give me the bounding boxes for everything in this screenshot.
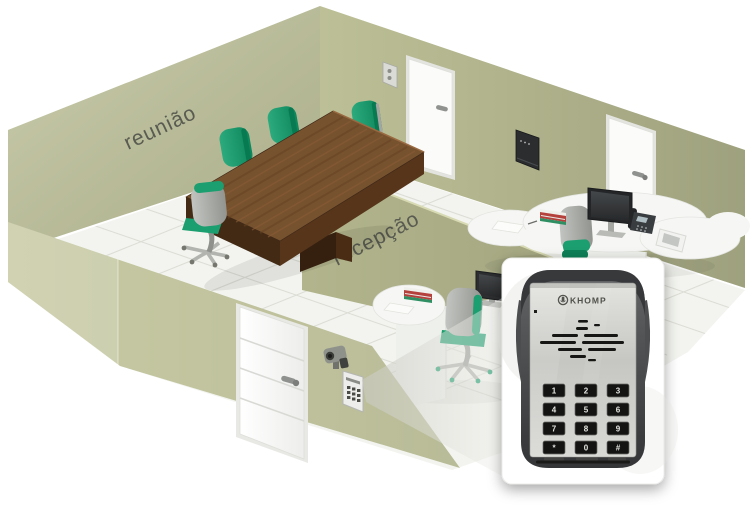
brand-name: KHOMP [570, 296, 607, 306]
svg-text:0: 0 [584, 444, 589, 453]
svg-text:8: 8 [584, 425, 589, 434]
entrance-door [236, 303, 308, 463]
status-led [534, 310, 537, 313]
right-door-handle-base [642, 175, 647, 180]
svg-text:9: 9 [616, 425, 621, 434]
keypad-bottom-labels [544, 458, 626, 461]
svg-text:2: 2 [584, 387, 589, 396]
intercom-inset: KHOMP [497, 258, 678, 484]
scene-canvas: reunião [0, 0, 750, 508]
plate-top-shadow [530, 283, 636, 288]
intercom-device: KHOMP [516, 270, 650, 468]
svg-text:4: 4 [552, 406, 557, 415]
device-bottom-slot [536, 461, 630, 464]
entrance-door-handle-base [293, 380, 299, 386]
svg-text:6: 6 [616, 406, 621, 415]
svg-text:7: 7 [552, 425, 557, 434]
svg-text:1: 1 [552, 387, 557, 396]
svg-text:5: 5 [584, 406, 589, 415]
intercom-keypad: 1 2 3 4 5 6 7 8 9 * 0 # [543, 384, 629, 461]
isometric-office-illustration: reunião [0, 0, 750, 508]
svg-text:3: 3 [616, 387, 621, 396]
svg-text:#: # [616, 444, 621, 453]
